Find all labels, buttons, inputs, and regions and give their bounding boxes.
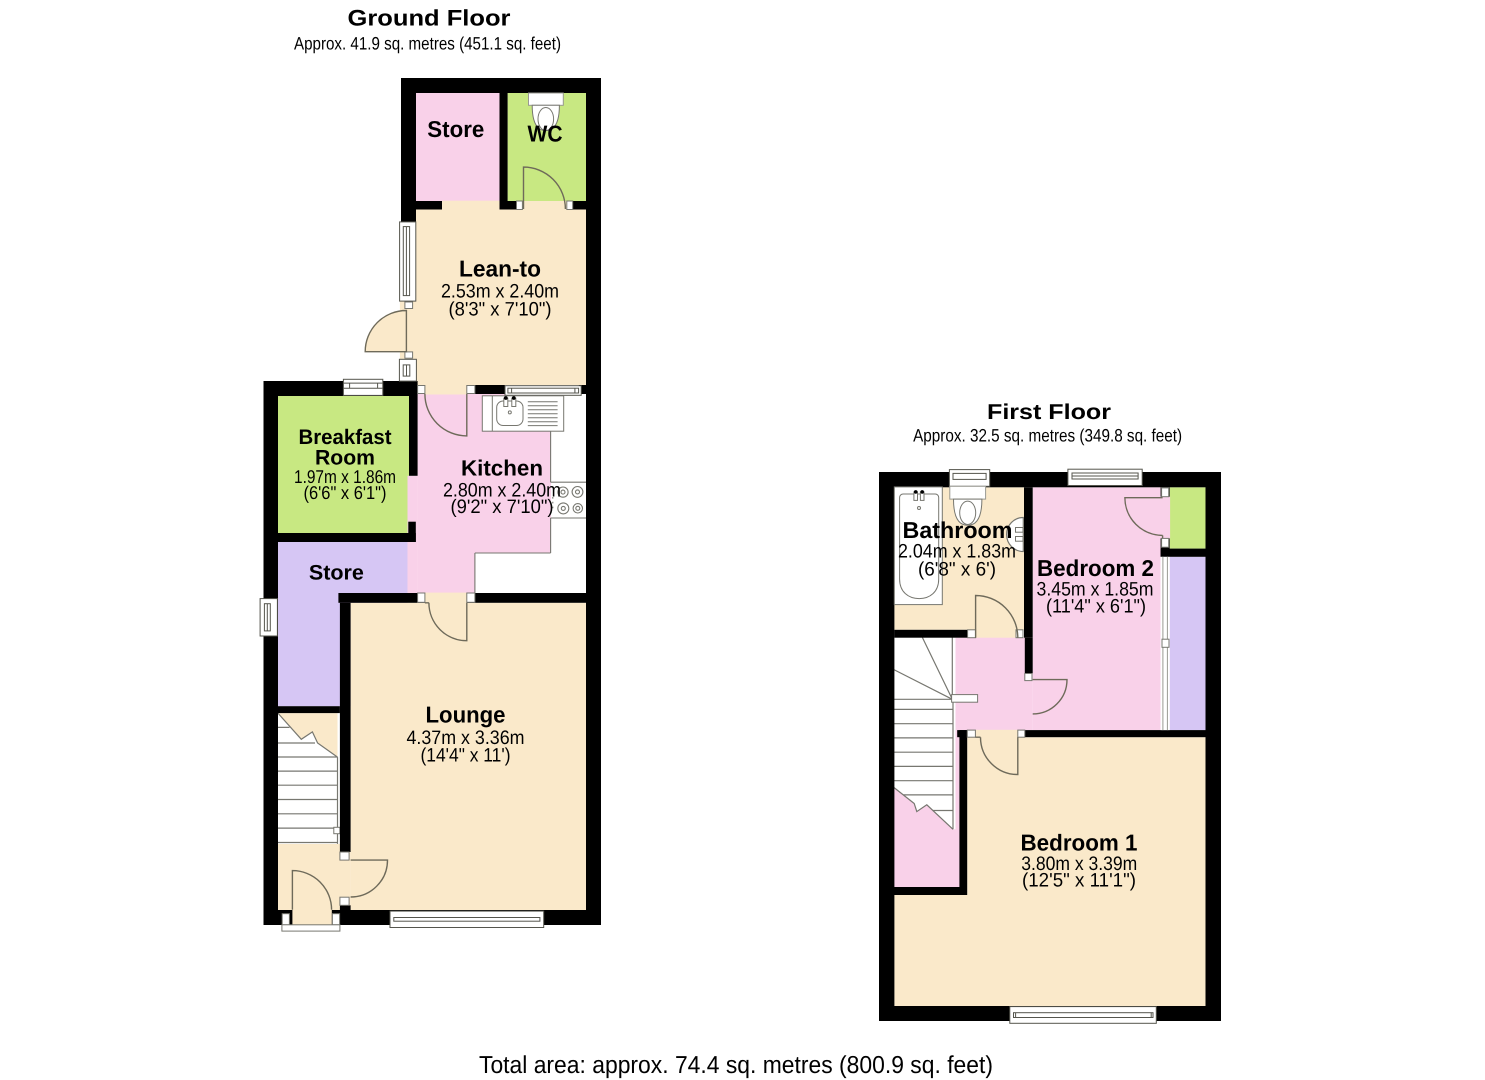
svg-text:Bedroom 1: Bedroom 1	[1021, 830, 1138, 856]
svg-text:First Floor: First Floor	[987, 400, 1112, 424]
svg-text:Ground Floor: Ground Floor	[348, 6, 511, 31]
svg-text:WC: WC	[528, 121, 563, 147]
svg-text:(6'6" x 6'1"): (6'6" x 6'1")	[304, 482, 387, 503]
svg-text:Total area: approx. 74.4 sq. m: Total area: approx. 74.4 sq. metres (800…	[479, 1052, 993, 1079]
svg-text:Lounge: Lounge	[426, 702, 506, 728]
svg-text:(6'8" x 6'): (6'8" x 6')	[918, 559, 996, 581]
svg-text:(14'4" x 11'): (14'4" x 11')	[421, 745, 511, 767]
svg-text:Store: Store	[309, 561, 364, 584]
svg-text:Lean-to: Lean-to	[459, 256, 541, 282]
svg-text:Store: Store	[427, 116, 484, 142]
svg-text:Approx. 41.9 sq. metres (451.1: Approx. 41.9 sq. metres (451.1 sq. feet)	[294, 34, 561, 54]
svg-text:(11'4" x 6'1"): (11'4" x 6'1")	[1046, 596, 1146, 618]
svg-text:Bathroom: Bathroom	[903, 517, 1013, 543]
svg-text:Kitchen: Kitchen	[461, 455, 543, 480]
svg-text:Approx. 32.5 sq. metres (349.8: Approx. 32.5 sq. metres (349.8 sq. feet)	[913, 426, 1182, 446]
svg-text:(9'2" x 7'10"): (9'2" x 7'10")	[451, 496, 554, 518]
svg-text:Bedroom 2: Bedroom 2	[1037, 555, 1154, 581]
svg-text:(8'3" x 7'10"): (8'3" x 7'10")	[449, 299, 552, 321]
svg-text:(12'5" x 11'1"): (12'5" x 11'1")	[1022, 870, 1136, 892]
